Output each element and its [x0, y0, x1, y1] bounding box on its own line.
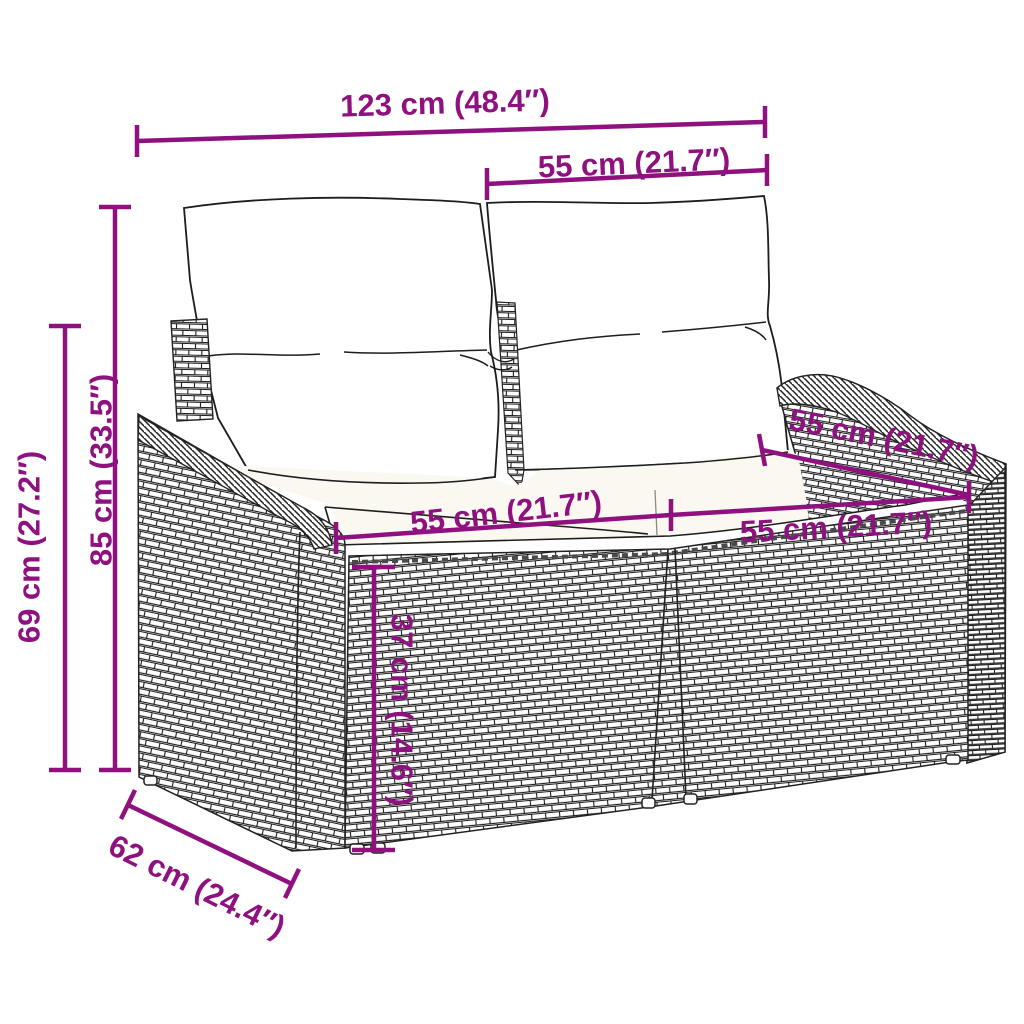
- svg-text:69 cm (27.2″): 69 cm (27.2″): [12, 451, 47, 643]
- svg-text:55 cm (21.7″): 55 cm (21.7″): [537, 141, 731, 184]
- svg-text:37 cm (14.6″): 37 cm (14.6″): [385, 614, 420, 806]
- svg-text:123 cm (48.4″): 123 cm (48.4″): [340, 82, 551, 123]
- svg-text:62 cm (24.4″): 62 cm (24.4″): [103, 827, 291, 944]
- svg-text:85 cm (33.5″): 85 cm (33.5″): [84, 374, 119, 566]
